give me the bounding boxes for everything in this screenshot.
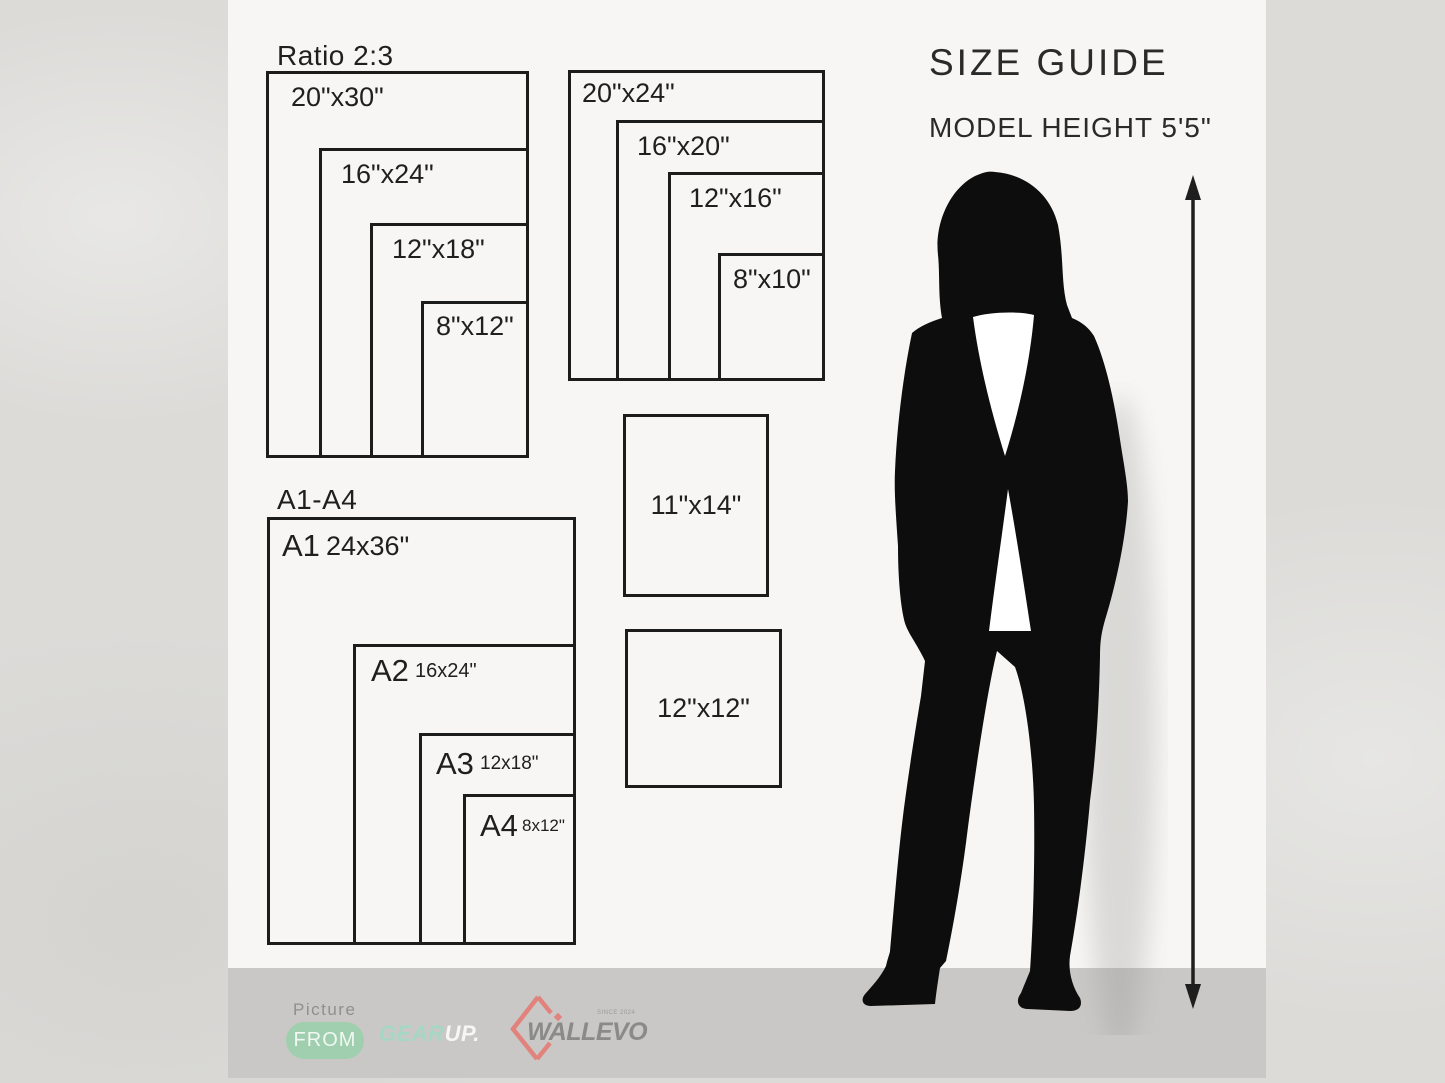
a1-label: A1 <box>282 528 320 564</box>
size-box-11x14: 11"x14" <box>623 414 769 597</box>
model-silhouette <box>858 165 1168 1035</box>
a4-label: A4 <box>480 808 518 844</box>
wallevo-since-label: SINCE 2024 <box>597 1010 635 1016</box>
a3-label: A3 <box>436 746 474 782</box>
a1-size: 24x36" <box>326 531 409 562</box>
picture-label: Picture <box>293 1000 356 1020</box>
size-label-20x30: 20"x30" <box>291 82 384 113</box>
size-label-11x14: 11"x14" <box>651 490 742 521</box>
size-guide-image: Ratio 2:3 20"x30" 16"x24" 12"x18" 8"x12"… <box>0 0 1445 1083</box>
gearup-logo: GEARUP. <box>379 1021 480 1047</box>
ratio-group-heading: Ratio 2:3 <box>277 40 394 72</box>
a2-size: 16x24" <box>415 660 477 683</box>
size-label-16x24: 16"x24" <box>341 159 434 190</box>
model-height-label: MODEL HEIGHT 5'5" <box>929 112 1212 144</box>
a2-label: A2 <box>371 653 409 689</box>
size-label-20x24: 20"x24" <box>582 78 675 109</box>
size-label-8x12: 8"x12" <box>436 311 514 342</box>
size-label-12x18: 12"x18" <box>392 234 485 265</box>
size-label-12x12: 12"x12" <box>657 693 750 724</box>
arrowhead-down <box>1185 984 1201 1009</box>
arrowhead-up <box>1185 175 1201 200</box>
page-title: SIZE GUIDE <box>929 42 1169 84</box>
from-badge: FROM <box>286 1022 364 1059</box>
from-badge-label: FROM <box>294 1029 357 1052</box>
size-label-16x20: 16"x20" <box>637 131 730 162</box>
a-series-heading: A1-A4 <box>277 484 357 516</box>
size-label-8x10: 8"x10" <box>733 264 811 295</box>
height-arrow <box>1176 172 1210 1012</box>
gearup-logo-part2: UP. <box>445 1021 480 1046</box>
gearup-logo-part1: GEAR <box>379 1021 445 1046</box>
wallevo-logo: WALLEVO <box>527 1018 647 1047</box>
size-box-12x12: 12"x12" <box>625 629 782 788</box>
size-label-12x16: 12"x16" <box>689 183 782 214</box>
a4-size: 8x12" <box>522 816 565 836</box>
a3-size: 12x18" <box>480 753 539 775</box>
